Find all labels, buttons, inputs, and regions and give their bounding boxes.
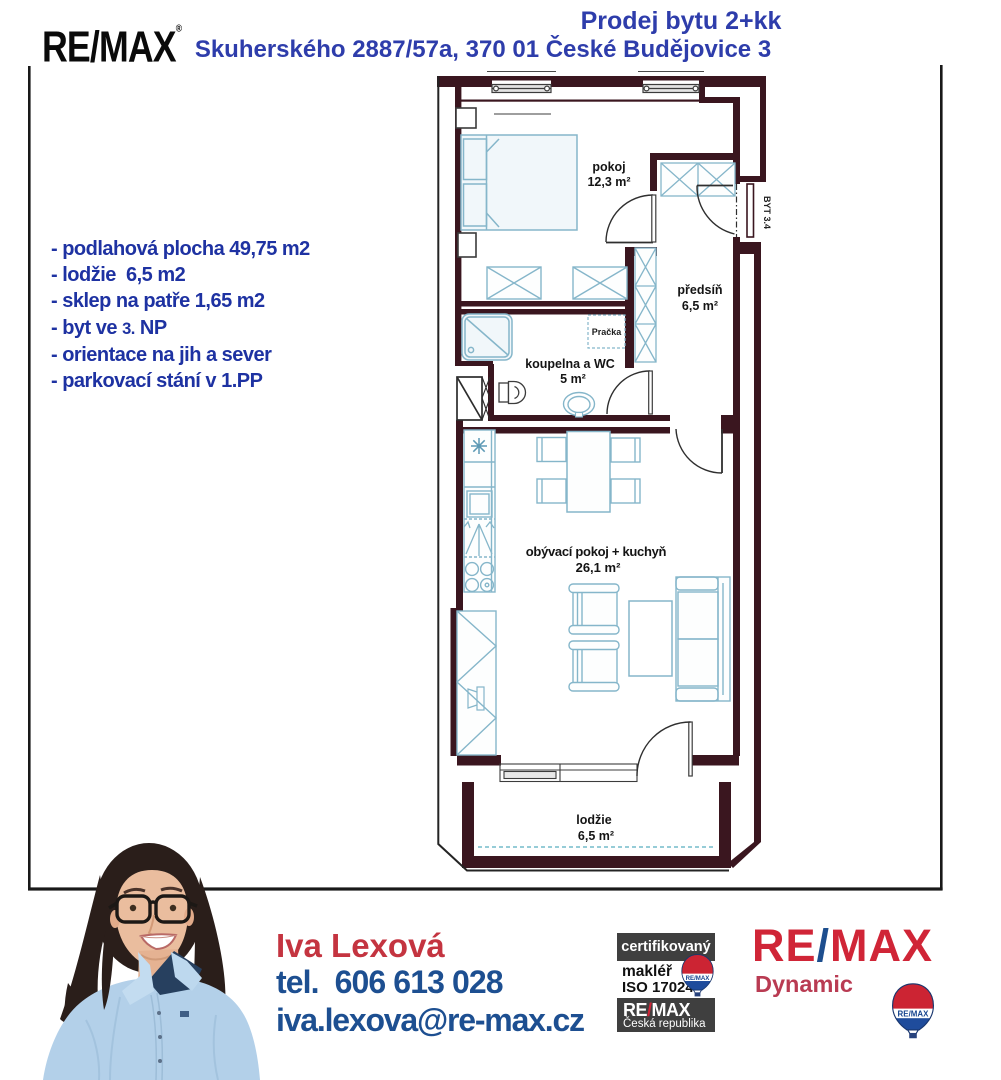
svg-text:RE/MAX: RE/MAX <box>898 1010 930 1019</box>
svg-text:lodžie: lodžie <box>576 813 611 827</box>
svg-text:12,3 m²: 12,3 m² <box>587 175 630 189</box>
svg-text:6,5 m²: 6,5 m² <box>578 829 614 843</box>
svg-text:pokoj: pokoj <box>592 160 625 174</box>
svg-text:6,5 m²: 6,5 m² <box>682 299 718 313</box>
svg-text:26,1 m²: 26,1 m² <box>576 560 621 575</box>
svg-text:koupelna a WC: koupelna a WC <box>525 357 615 371</box>
svg-text:předsíň: předsíň <box>677 283 722 297</box>
svg-text:obývací pokoj + kuchyň: obývací pokoj + kuchyň <box>526 544 667 559</box>
svg-text:RE/MAX: RE/MAX <box>686 975 711 982</box>
svg-text:BYT 3.4: BYT 3.4 <box>762 196 772 229</box>
svg-text:5 m²: 5 m² <box>560 372 586 386</box>
svg-text:Pračka: Pračka <box>592 327 623 337</box>
